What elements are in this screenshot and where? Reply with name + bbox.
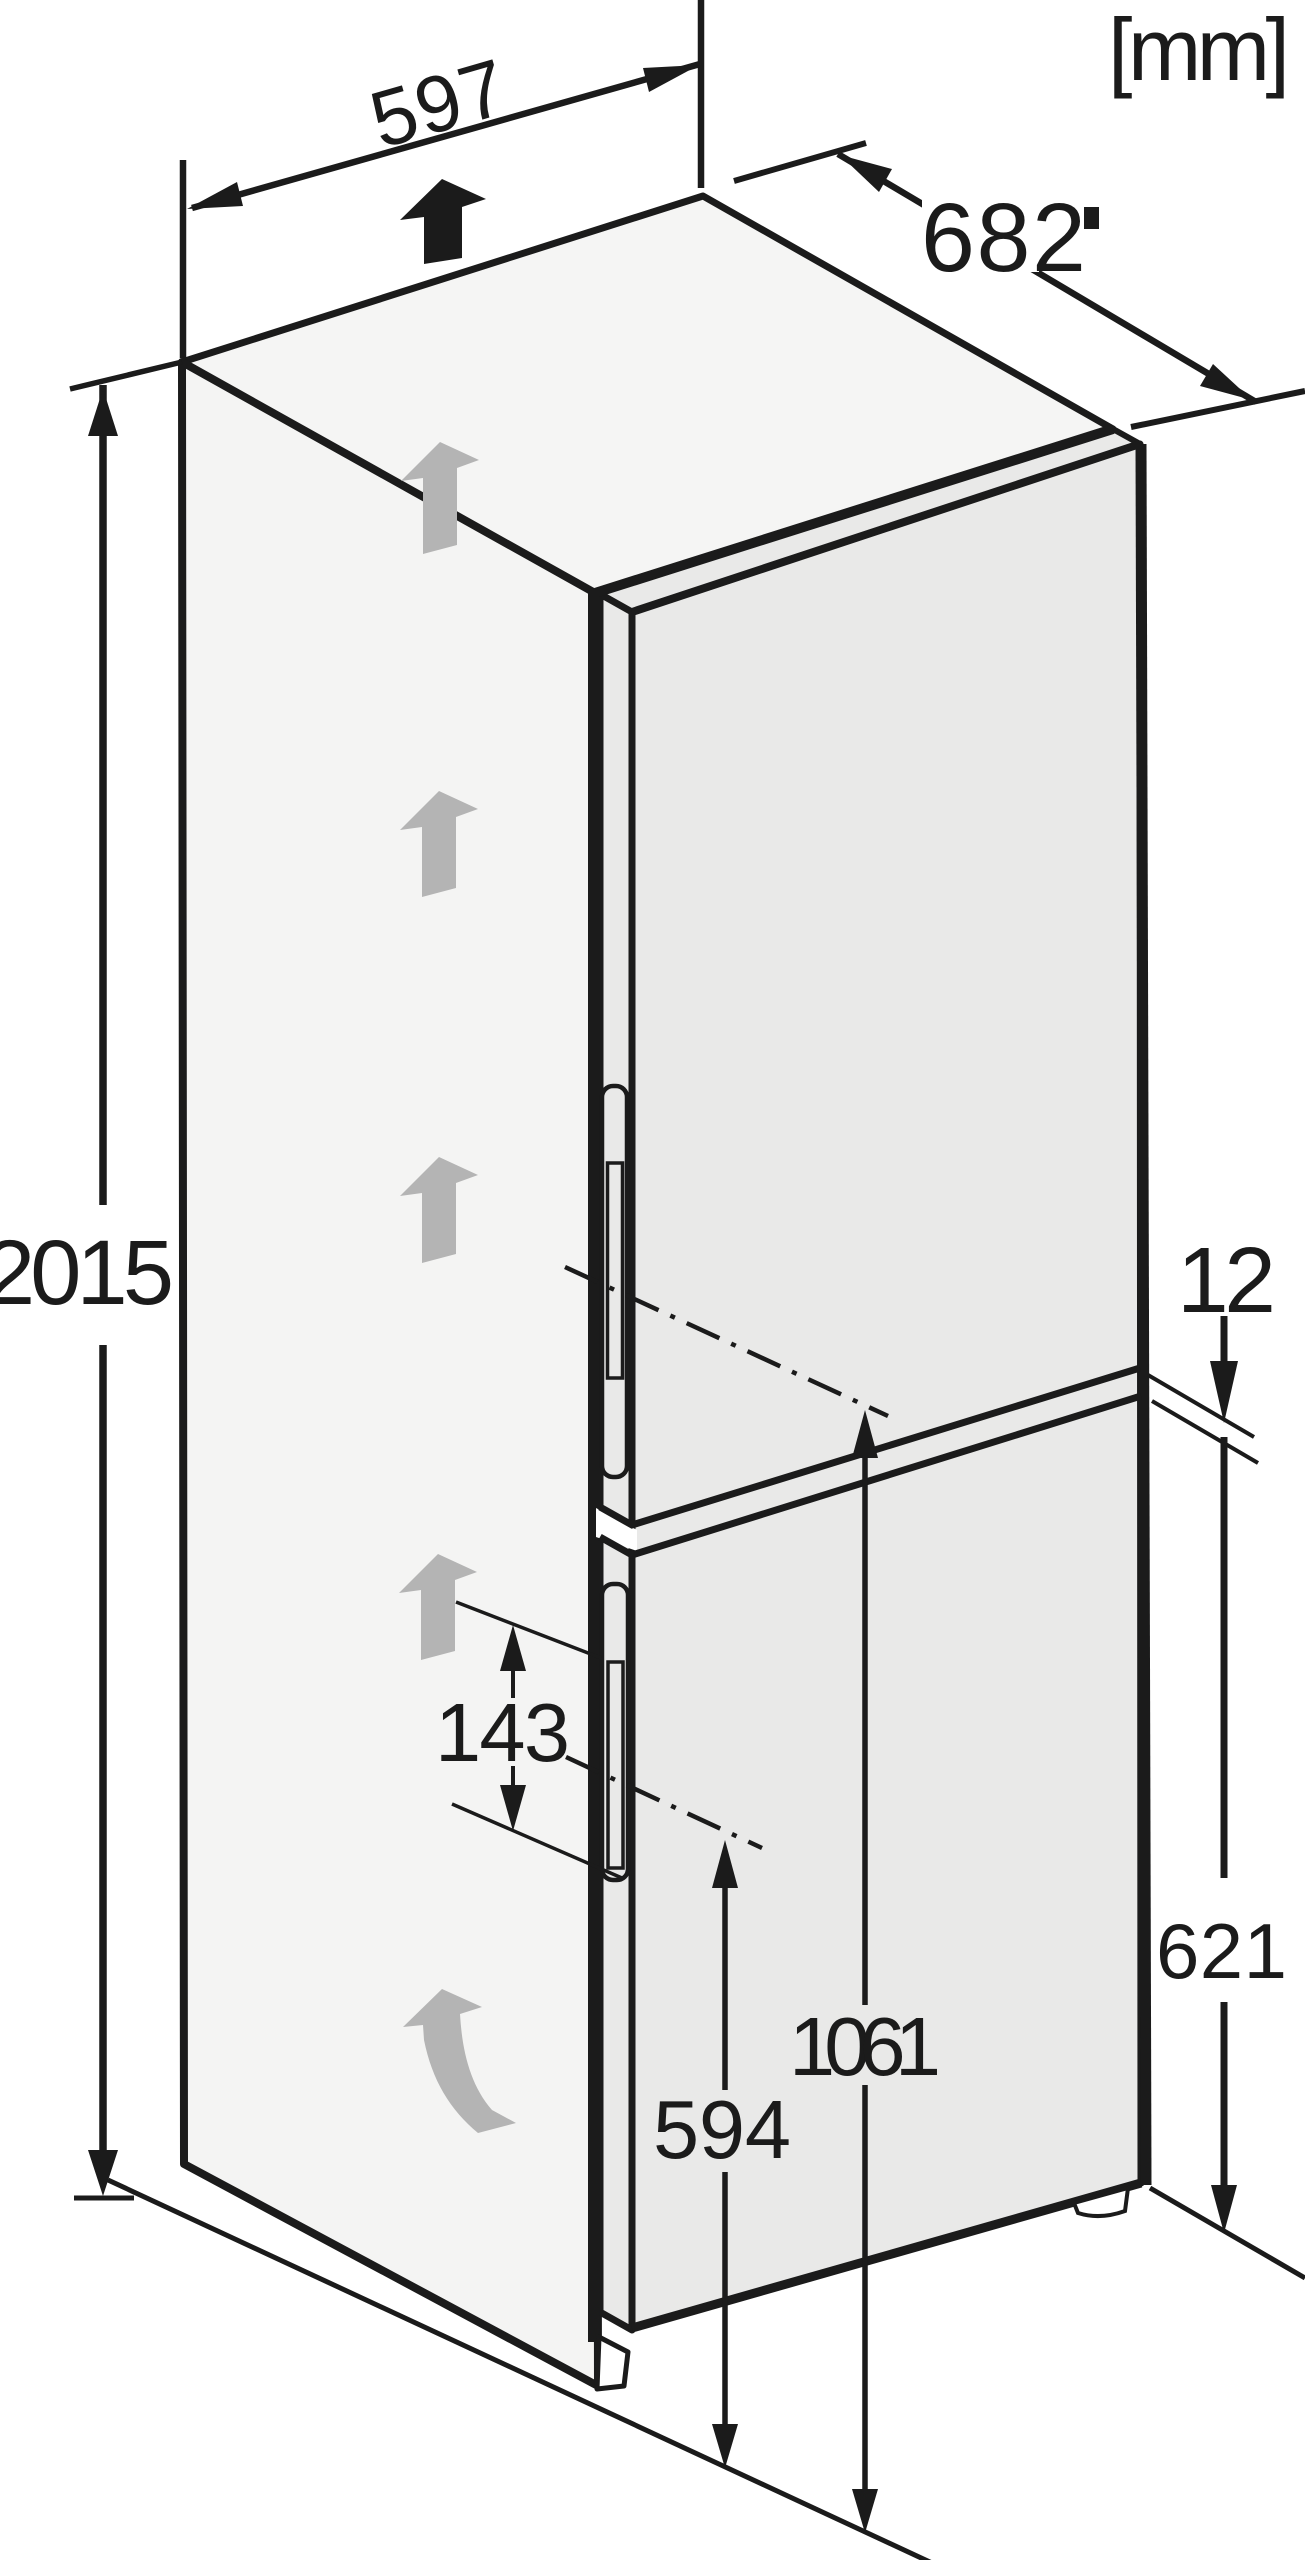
svg-text:594: 594: [653, 2083, 791, 2176]
svg-text:143: 143: [435, 1686, 570, 1779]
svg-text:621: 621: [1156, 1907, 1287, 1995]
svg-text:682: 682: [921, 183, 1086, 292]
svg-text:[mm]: [mm]: [1108, 0, 1290, 99]
svg-text:1061: 1061: [789, 2000, 941, 2093]
svg-text:597: 597: [361, 42, 516, 165]
svg-text:2015: 2015: [0, 1222, 174, 1324]
